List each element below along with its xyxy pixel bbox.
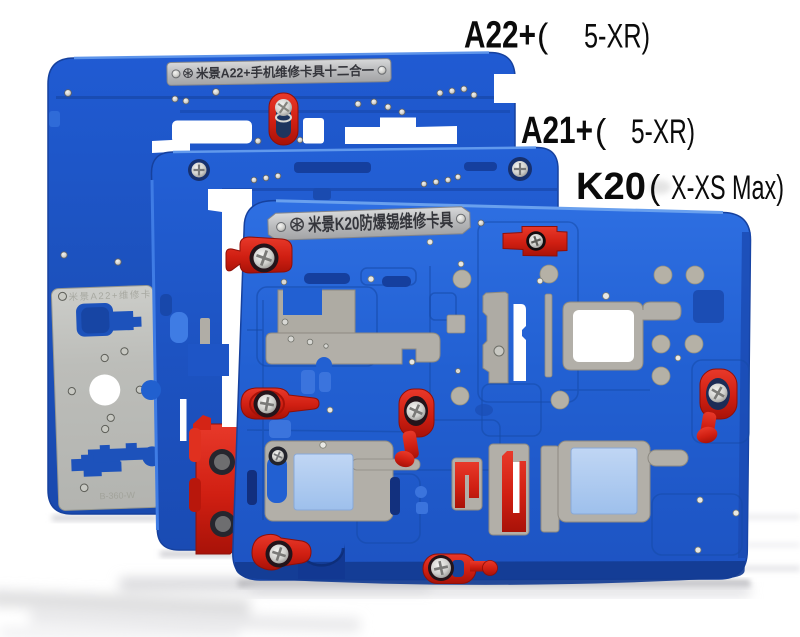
svg-text:A21+: A21+ [521,110,593,152]
svg-text:K20: K20 [576,166,646,208]
svg-text:(: ( [649,169,661,207]
svg-text:5-XR): 5-XR) [584,18,650,56]
svg-text:X-XS Max): X-XS Max) [671,169,784,207]
svg-text:B-360-W: B-360-W [99,490,135,501]
svg-text:A22+: A22+ [464,15,536,57]
svg-text:5-XR): 5-XR) [631,113,695,151]
svg-text:(: ( [537,18,549,56]
svg-text:(: ( [595,113,607,151]
svg-text:米景A22+手机维修卡具十二合一: 米景A22+手机维修卡具十二合一 [196,63,374,81]
